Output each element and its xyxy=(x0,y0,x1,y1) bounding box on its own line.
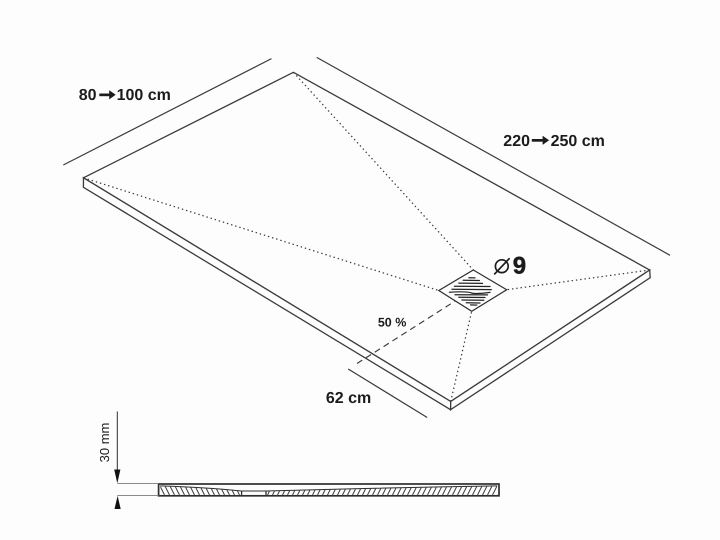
svg-text:9: 9 xyxy=(513,252,526,279)
svg-text:220: 220 xyxy=(503,133,530,150)
svg-text:30 mm: 30 mm xyxy=(97,423,112,463)
svg-text:100 cm: 100 cm xyxy=(117,87,171,104)
svg-text:50 %: 50 % xyxy=(378,316,407,330)
svg-text:80: 80 xyxy=(79,87,97,104)
svg-text:250 cm: 250 cm xyxy=(551,133,605,150)
svg-text:62 cm: 62 cm xyxy=(326,390,371,407)
